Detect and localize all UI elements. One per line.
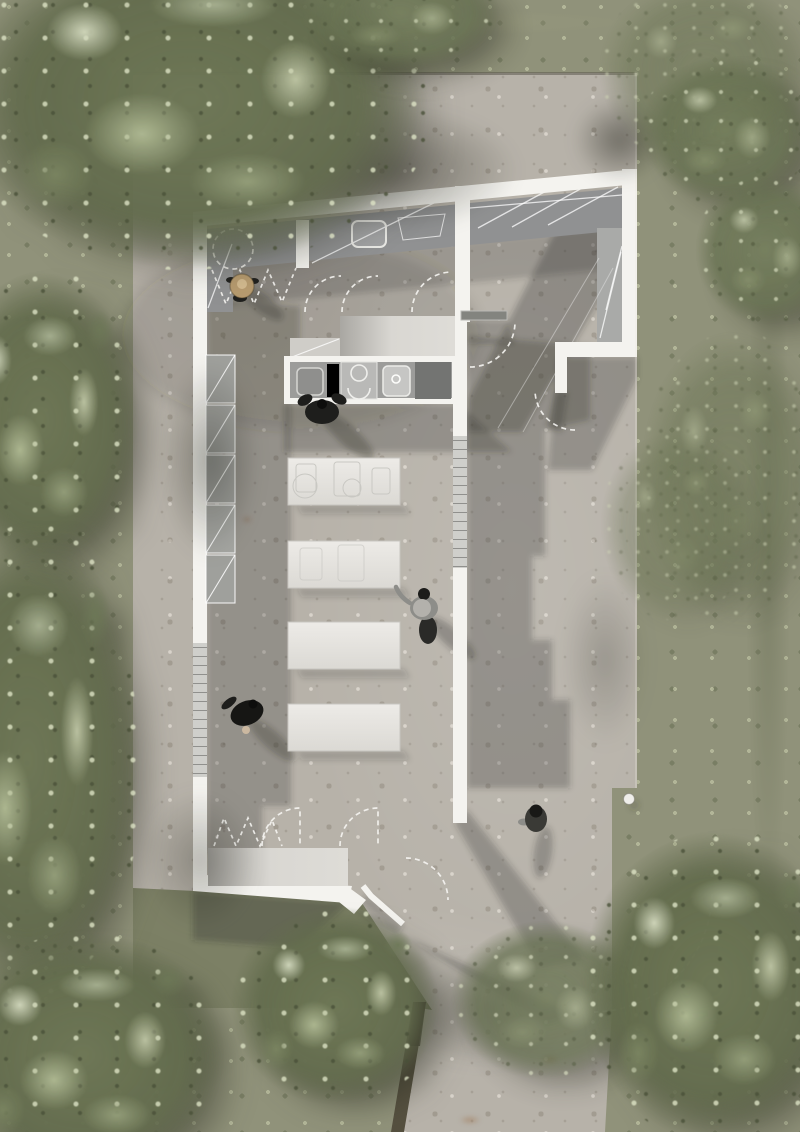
- arc-bottom-2: [340, 808, 378, 846]
- tree-shade-blob: [140, 320, 280, 600]
- person-walking-center: [396, 587, 438, 644]
- wall-mid-right-glazing: [453, 436, 467, 568]
- bush-bottom-center-left: [230, 905, 440, 1105]
- sink-right: [383, 366, 410, 396]
- wall-stub-right-room: [555, 357, 567, 393]
- shadow-table-3: [296, 669, 410, 678]
- shadow-table-4: [296, 751, 410, 760]
- arc-door-leaf: [406, 858, 448, 900]
- tree-shade-blob: [120, 760, 280, 960]
- cabinet-front: [327, 364, 339, 397]
- wall-right-room-bottom: [555, 342, 637, 357]
- shadow-table-1: [296, 505, 410, 514]
- person-lower-right: [518, 805, 547, 833]
- dining-tables: [288, 458, 400, 751]
- sink-left: [297, 368, 323, 395]
- bench: [461, 311, 507, 320]
- table-3: [288, 622, 400, 669]
- column-dot: [624, 794, 635, 805]
- site-plan-canvas: [0, 0, 800, 1132]
- wall-left-glazing: [193, 643, 207, 777]
- shadow-person-5: [530, 825, 555, 879]
- shadow-bench: [461, 320, 515, 344]
- canopy-band-right-room: [597, 228, 622, 344]
- deck-above-kitchen: [340, 316, 455, 358]
- shadow-table-2: [296, 588, 410, 597]
- appliance-dark: [415, 362, 451, 399]
- table-4: [288, 704, 400, 751]
- shrub-right-overhang: [600, 430, 750, 620]
